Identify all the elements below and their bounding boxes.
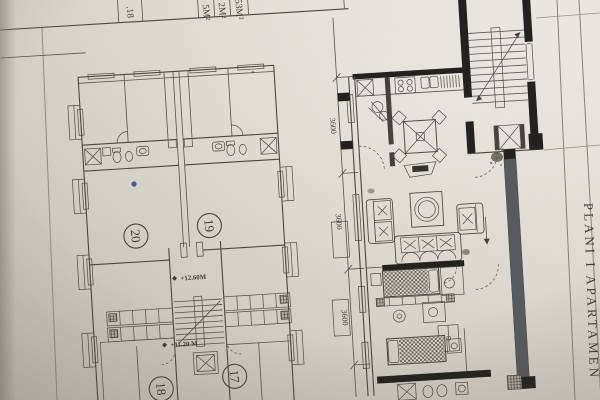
floor-plan-photo: .18 5M² 2M² 53M² — [0, 0, 600, 400]
